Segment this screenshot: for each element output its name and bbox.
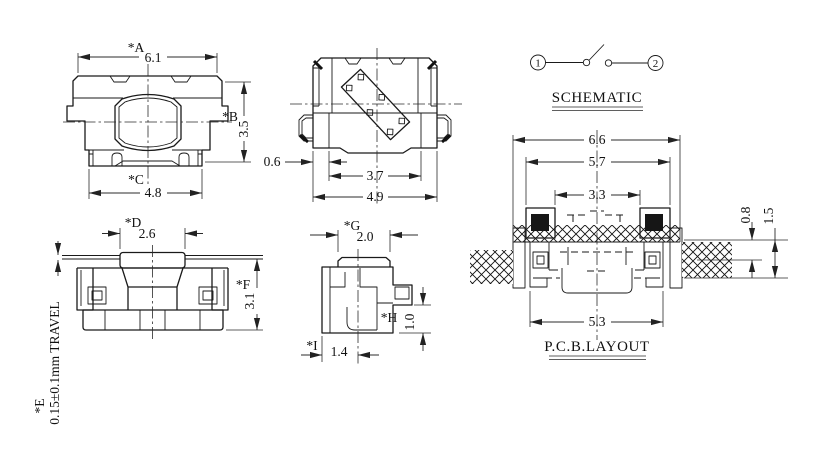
dim-value-d: 2.6 — [139, 226, 156, 241]
movable-contact — [341, 69, 410, 140]
drawing-canvas: *A 6.1 *B 3.5 *C 4.8 — [0, 0, 819, 470]
dim-value-a: 6.1 — [145, 50, 162, 65]
switch-lever — [589, 45, 604, 61]
dim-value-feet-span: 5.3 — [589, 314, 606, 329]
bottom-view: 0.6 3.7 4.9 — [264, 48, 462, 205]
top-view: *A 6.1 *B 3.5 *C 4.8 — [63, 40, 251, 200]
dim-value-pad-height: 0.8 — [738, 206, 753, 223]
dim-value-f: 3.1 — [242, 293, 257, 310]
dim-value-inner: 3.7 — [367, 168, 384, 183]
contact-node-right — [605, 60, 611, 66]
technical-drawing-page: *A 6.1 *B 3.5 *C 4.8 — [0, 0, 819, 470]
dim-value-c: 4.8 — [145, 185, 162, 200]
dim-label-a: *A — [128, 40, 145, 55]
dim-value-b: 3.5 — [236, 120, 251, 137]
end-view: *G 2.0 *H 1.0 *I 1.4 — [301, 218, 431, 364]
dim-value-h: 1.0 — [402, 313, 417, 330]
contact-node-left — [583, 59, 589, 65]
dim-label-c: *C — [128, 172, 144, 187]
dim-value-total-height: 1.5 — [761, 207, 776, 224]
side-view-body — [62, 245, 263, 342]
schematic-title: SCHEMATIC — [552, 90, 642, 106]
dim-value-outer: 4.9 — [367, 189, 384, 204]
bottom-view-dimensions: 0.6 3.7 4.9 — [264, 151, 437, 204]
schematic: 1 2 SCHEMATIC — [531, 45, 664, 111]
top-view-dimensions: *A 6.1 *B 3.5 *C 4.8 — [78, 40, 251, 200]
pcb-layout: 6.6 5.7 3.3 5.3 0.8 1.5 P.C.B.LAYOUT — [470, 130, 788, 360]
dim-label-i: *I — [306, 338, 318, 353]
dim-value-terminal: 0.6 — [264, 154, 281, 169]
dim-value-g: 2.0 — [357, 229, 374, 244]
dim-value-pad-outer: 5.7 — [589, 154, 606, 169]
crosshatch-left-band — [470, 250, 513, 284]
dim-label-e: *E — [32, 399, 47, 414]
dim-value-i: 1.4 — [331, 344, 348, 359]
dim-value-pad-inner: 3.3 — [589, 187, 606, 202]
pin1-number: 1 — [535, 58, 541, 70]
dim-label-h: *H — [381, 310, 398, 325]
solder-pad-right-core — [645, 214, 663, 231]
dim-value-outer-width: 6.6 — [589, 132, 606, 147]
side-view-dimensions: *D 2.6 *E 0.15±0.1mm TRAVEL *F 3.1 — [32, 215, 263, 425]
pcb-layout-title: P.C.B.LAYOUT — [544, 339, 649, 355]
pcb-hatching — [470, 208, 732, 288]
top-view-body — [63, 64, 232, 184]
solder-pad-left-core — [531, 214, 549, 231]
travel-note: 0.15±0.1mm TRAVEL — [47, 301, 62, 425]
side-view: *D 2.6 *E 0.15±0.1mm TRAVEL *F 3.1 — [32, 215, 263, 425]
pin2-number: 2 — [653, 58, 659, 70]
dim-label-f: *F — [236, 277, 251, 292]
